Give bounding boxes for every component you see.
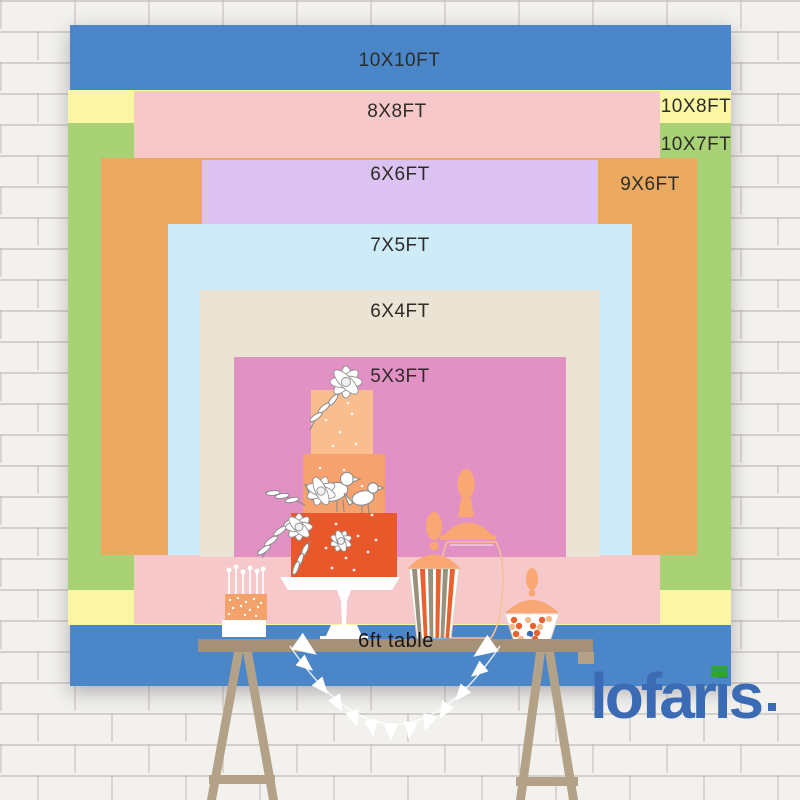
label-9x6ft: 9X6FT: [604, 174, 696, 196]
label-5x3ft: 5X3FT: [234, 366, 566, 388]
label-10x7ft: 10X7FT: [660, 134, 732, 156]
brick-wall-background: 10X10FT 8X8FT 10X8FT 10X7FT 6X6FT 9X6FT …: [0, 0, 800, 800]
dessert-table: [198, 639, 594, 800]
label-6x6ft: 6X6FT: [202, 164, 598, 186]
brand-dot: [768, 703, 776, 711]
brand-name: lofaris: [590, 664, 761, 728]
table-crossbar: [516, 777, 578, 786]
label-8x8ft: 8X8FT: [134, 101, 660, 123]
brand-logo: lofaris: [590, 656, 800, 740]
cake-pops-icon: [222, 565, 267, 638]
tiered-cake-icon: [256, 366, 400, 642]
table-size-label: 6ft table: [198, 630, 594, 652]
label-7x5ft: 7X5FT: [168, 235, 632, 257]
brand-accent-block: [711, 666, 728, 677]
label-6x4ft: 6X4FT: [200, 301, 600, 323]
table-crossbar: [209, 775, 275, 784]
label-10x8ft: 10X8FT: [660, 96, 732, 118]
label-10x10ft: 10X10FT: [68, 50, 731, 72]
